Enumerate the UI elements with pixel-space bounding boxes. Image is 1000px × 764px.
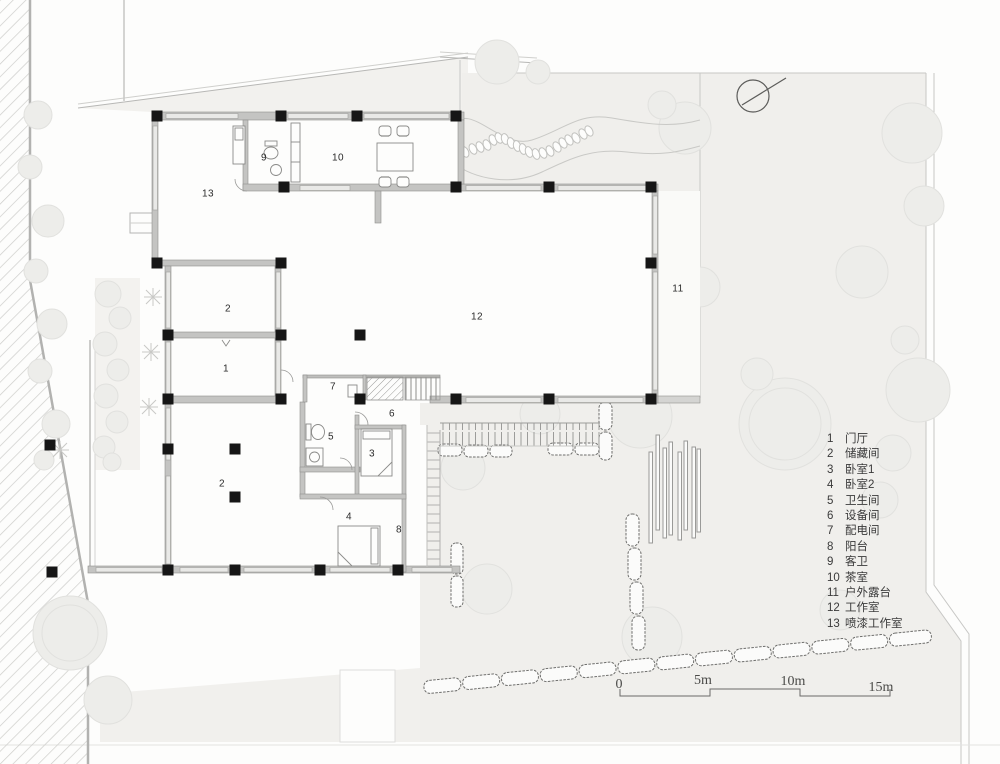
- bed-icon: [361, 429, 392, 476]
- legend-item-number: 7: [827, 524, 845, 539]
- legend-item-number: 13: [827, 617, 845, 632]
- legend-item: 4 卧室2: [827, 478, 903, 493]
- legend-item: 1 门厅: [827, 432, 903, 447]
- legend-item-number: 12: [827, 601, 845, 616]
- legend-item-label: 储藏间: [845, 447, 880, 462]
- legend-item: 8 阳台: [827, 540, 903, 555]
- legend-item-label: 阳台: [845, 540, 868, 555]
- bed-icon-2: [338, 526, 380, 566]
- legend-item: 7 配电间: [827, 524, 903, 539]
- legend-item-label: 门厅: [845, 432, 868, 447]
- basin-icon: [271, 165, 282, 176]
- legend-item: 11 户外露台: [827, 586, 903, 601]
- legend-item: 2 储藏间: [827, 447, 903, 462]
- legend-item-label: 喷漆工作室: [845, 617, 903, 632]
- legend-item-number: 1: [827, 432, 845, 447]
- legend-item-number: 3: [827, 463, 845, 478]
- legend-item-label: 户外露台: [845, 586, 891, 601]
- legend-item: 9 客卫: [827, 555, 903, 570]
- legend-item: 12 工作室: [827, 601, 903, 616]
- legend-item-number: 2: [827, 447, 845, 462]
- legend-item: 10 茶室: [827, 571, 903, 586]
- legend-item: 5 卫生间: [827, 494, 903, 509]
- legend-item-number: 11: [827, 586, 845, 601]
- legend-item-label: 卫生间: [845, 494, 880, 509]
- toilet-icon-2: [306, 424, 325, 440]
- legend-item-number: 6: [827, 509, 845, 524]
- legend-item-number: 10: [827, 571, 845, 586]
- legend-item: 3 卧室1: [827, 463, 903, 478]
- legend-item-number: 5: [827, 494, 845, 509]
- legend-item-label: 卧室2: [845, 478, 874, 493]
- legend-item-label: 卧室1: [845, 463, 874, 478]
- legend-item-label: 工作室: [845, 601, 880, 616]
- legend-item-number: 8: [827, 540, 845, 555]
- legend-item-label: 配电间: [845, 524, 880, 539]
- floor-plan-canvas: 9 10 13 2 1 12 11 7 6 5 3 2 4 8 1: [0, 0, 1000, 764]
- legend: 1 门厅 2 储藏间 3 卧室1 4 卧室2 5 卫生间 6 设备间 7 配电间…: [827, 432, 903, 632]
- legend-item: 13 喷漆工作室: [827, 617, 903, 632]
- legend-item: 6 设备间: [827, 509, 903, 524]
- pergola: [440, 423, 600, 446]
- legend-item-number: 4: [827, 478, 845, 493]
- legend-item-label: 茶室: [845, 571, 868, 586]
- legend-item-label: 设备间: [845, 509, 880, 524]
- legend-item-label: 客卫: [845, 555, 868, 570]
- toilet-icon: [264, 141, 278, 159]
- legend-item-number: 9: [827, 555, 845, 570]
- site-plan-drawing: [0, 0, 1000, 764]
